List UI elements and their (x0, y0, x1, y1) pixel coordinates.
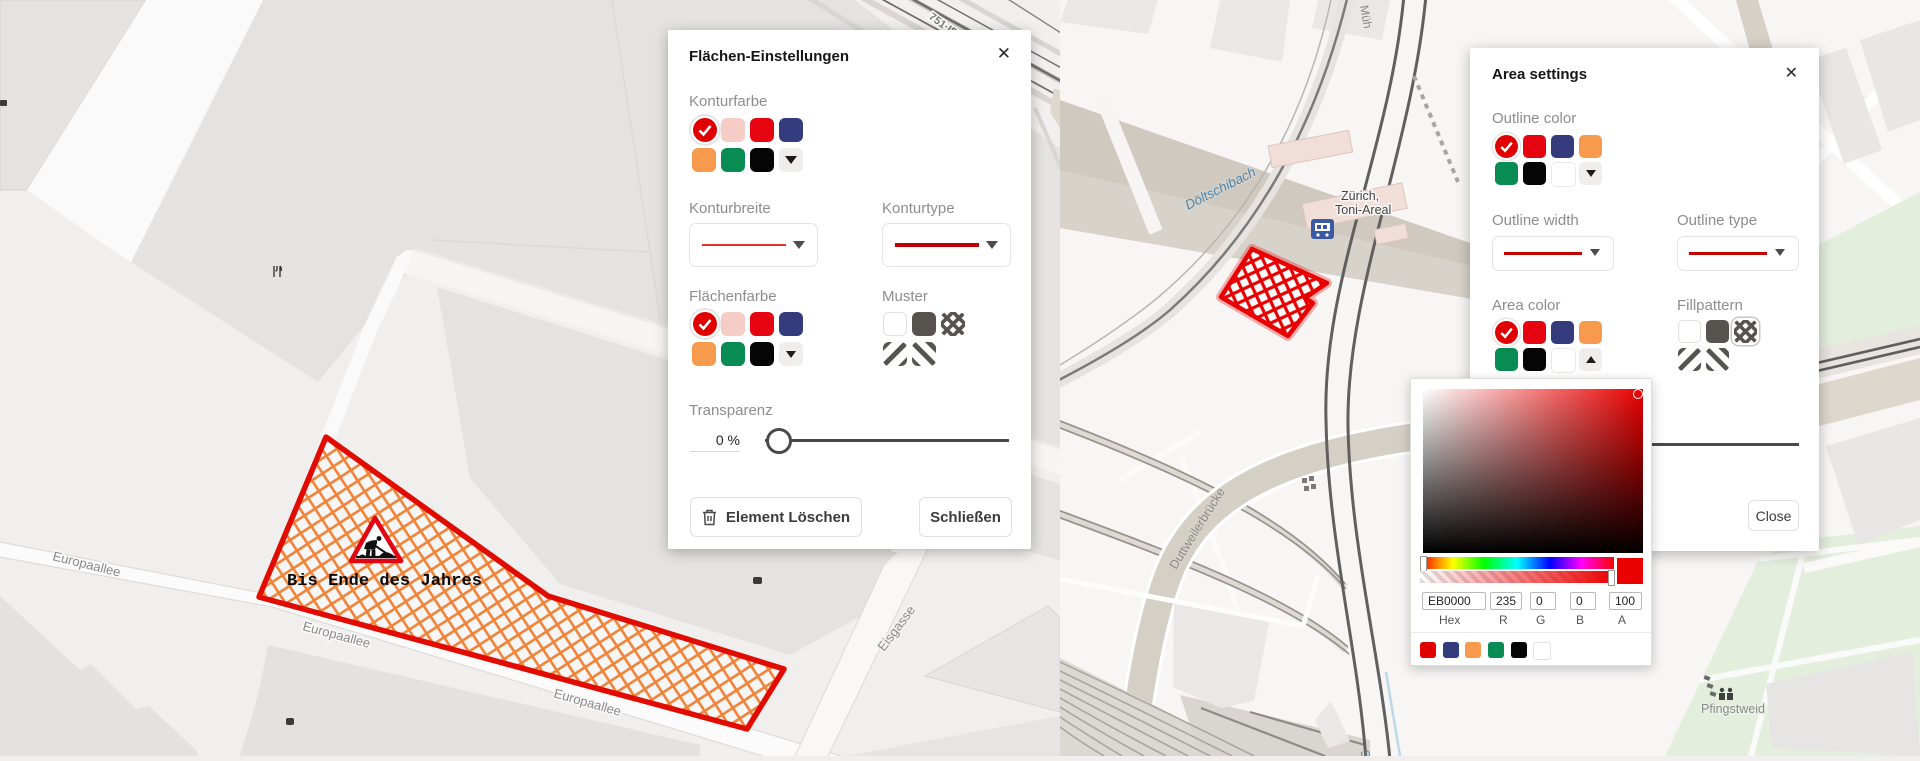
svg-text:Bis Ende des Jahres: Bis Ende des Jahres (287, 572, 482, 591)
svg-text:Zürich,: Zürich, (1341, 189, 1379, 203)
svg-text:Toni-Areal: Toni-Areal (1335, 203, 1391, 217)
svg-text:Pfingstweid: Pfingstweid (1701, 702, 1765, 716)
